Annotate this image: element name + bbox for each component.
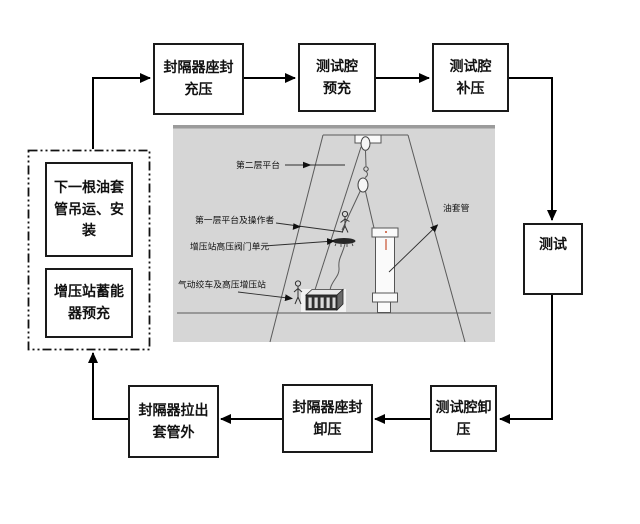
flow-box-label: 下一根油套 管吊运、安 装 [54,177,124,242]
flow-box-label: 测试腔 预充 [316,56,358,99]
crown-pulley [361,137,370,151]
flow-box-test-chamber-supplement: 测试腔 补压 [432,43,509,112]
flow-box-test: 测试 [523,223,583,295]
flow-box-label: 测试腔 补压 [450,56,492,99]
crate-slat [333,298,336,309]
connector-supplement-to-test [508,78,552,220]
crate-slat [315,298,318,309]
crate-slat [321,298,324,309]
flow-box-label: 测试 [539,234,567,256]
flow-box-label: 封隔器拉出 套管外 [139,400,209,443]
label-winch-booster: 气动绞车及高压增压站 [178,279,266,290]
connector-group-to-pressurize [93,78,150,149]
flow-box-test-chamber-prefill: 测试腔 预充 [298,43,376,112]
flow-box-packer-set-release: 封隔器座封 卸压 [282,384,373,453]
flow-box-booster-accumulator-prefill: 增压站蓄能 器预充 [45,268,133,338]
flow-box-next-casing-hoist-install: 下一根油套 管吊运、安 装 [45,162,133,257]
illustration-top-edge [173,125,495,129]
label-valve-unit: 增压站高压阀门单元 [190,241,269,252]
label-oil-casing: 油套管 [443,202,470,213]
connector-pullout-to-group [93,353,128,419]
worker-head [295,281,300,286]
flowchart-canvas: 第二层平台 第一层平台及操作者 增压站高压阀门单元 气动绞车及高压增压站 油套管… [0,0,640,524]
crate-slat [309,298,312,309]
label-second-platform: 第二层平台 [236,159,280,170]
red-marker-dot [385,231,387,233]
valve-manifold [333,238,356,244]
flow-box-label: 封隔器座封 卸压 [293,397,363,440]
rig-illustration: 第二层平台 第一层平台及操作者 增压站高压阀门单元 气动绞车及高压增压站 油套管 [173,125,495,342]
traveling-pulley [358,178,368,192]
casing-top-collar [372,228,398,237]
casing-body [376,237,395,293]
flow-box-packer-pull-out: 封隔器拉出 套管外 [128,385,219,458]
flow-box-label: 增压站蓄能 器预充 [54,281,124,324]
oil-casing-pipe [372,228,398,313]
casing-bottom-collar [373,293,398,302]
winch-booster-station [301,289,346,312]
operator-head [342,211,347,216]
casing-stem [378,302,391,313]
flow-box-label: 测试腔卸 压 [436,397,492,440]
connector-test-to-release [500,295,552,419]
flow-box-label: 封隔器座封 充压 [164,57,234,100]
flow-box-test-chamber-release: 测试腔卸 压 [430,385,497,452]
crate-slat [327,298,330,309]
flow-box-packer-set-pressurize: 封隔器座封 充压 [153,43,244,115]
pulley-link-line [366,151,367,166]
label-first-platform-operator: 第一层平台及操作者 [195,214,274,225]
